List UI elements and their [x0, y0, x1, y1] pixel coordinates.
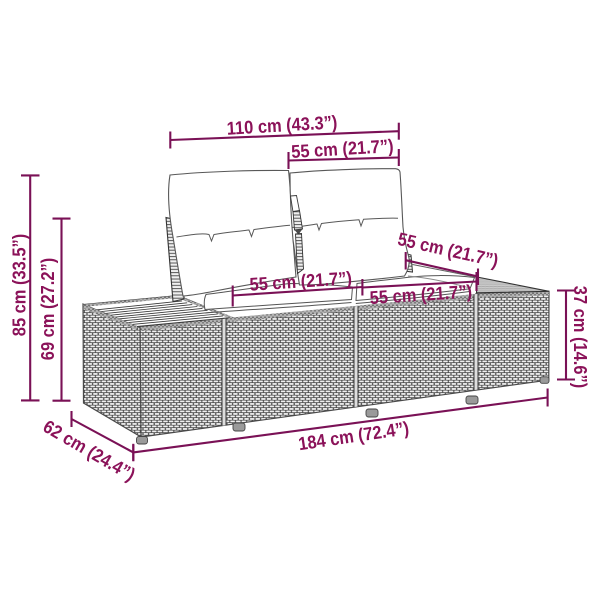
svg-text:37 cm (14.6”): 37 cm (14.6”)	[570, 286, 591, 388]
svg-text:85 cm (33.5”): 85 cm (33.5”)	[9, 234, 30, 336]
svg-text:69 cm (27.2”): 69 cm (27.2”)	[37, 258, 58, 360]
